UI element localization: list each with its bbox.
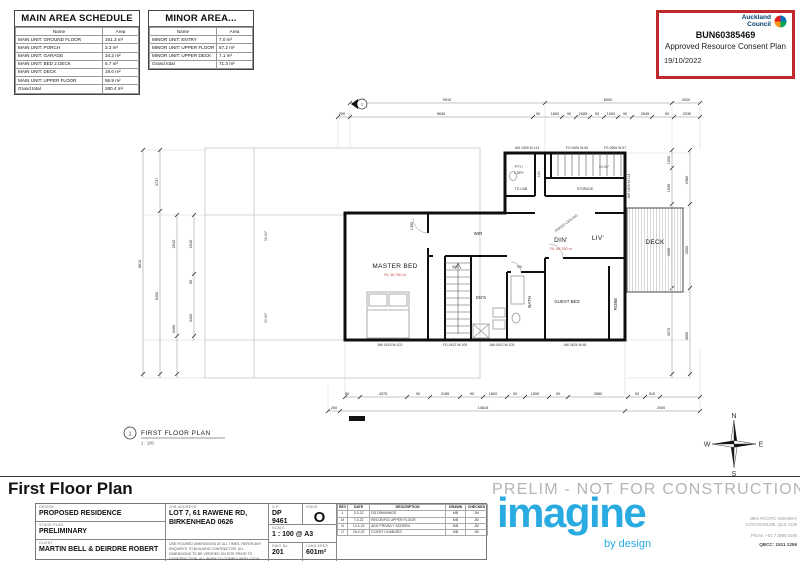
floor-plan-drawing: 1 MASTER BED RL 46.780 m WIR EN'S BATH — [115, 86, 745, 446]
svg-text:3580: 3580 — [594, 392, 602, 396]
svg-text:200: 200 — [331, 406, 337, 410]
svg-text:2545: 2545 — [641, 112, 649, 116]
master-rl-label: RL 46.780 m — [384, 273, 406, 277]
sheet-divider — [0, 476, 800, 477]
auckland-council-logo-icon — [774, 15, 787, 28]
table-row: MAIN UNIT: GROUND FLOOR161.3 m² — [16, 36, 139, 44]
svg-text:2020: 2020 — [682, 98, 690, 102]
disclaimer-text: USE FIGURED DIMENSIONS AT ALL TIMES. REF… — [169, 541, 265, 561]
company-qbcc: QBCC: 1511 1256 — [700, 542, 797, 549]
room-label-ldry: L'DRY — [514, 171, 524, 175]
svg-text:AW 1806 W-113: AW 1806 W-113 — [515, 146, 540, 150]
svg-text:4375: 4375 — [379, 392, 387, 396]
svg-text:90: 90 — [513, 392, 517, 396]
svg-text:2085: 2085 — [579, 112, 587, 116]
table-row: MINOR UNIT: ENTRY7.0 m² — [150, 36, 253, 44]
svg-text:90: 90 — [556, 392, 560, 396]
consent-reference: BUN60385469 — [664, 30, 787, 40]
caption-title: FIRST FLOOR PLAN — [141, 430, 211, 437]
col-header-name: Name — [16, 28, 103, 36]
room-label-guest-bed: GUEST BED — [554, 299, 579, 304]
svg-text:90: 90 — [345, 392, 349, 396]
sp-label: S.P — [272, 505, 299, 509]
deck-area — [627, 208, 683, 292]
land-area-value: 601m² — [306, 549, 333, 557]
svg-text:1000: 1000 — [607, 112, 615, 116]
approval-stamp: Auckland Council BUN60385469 Approved Re… — [656, 10, 795, 79]
svg-text:9910: 9910 — [443, 98, 451, 102]
table-row: MAIN UNIT: UPPER FLOOR56.9 m² — [16, 77, 139, 85]
table-row: MAIN UNIT: GARAGE34.2 m² — [16, 52, 139, 60]
svg-text:2980: 2980 — [685, 176, 689, 184]
raked-ceiling-note: RAKED CEILING — [554, 213, 579, 233]
caption-number: 1 — [129, 432, 132, 438]
svg-text:510: 510 — [649, 392, 655, 396]
walls — [345, 153, 625, 340]
svg-text:6400: 6400 — [155, 292, 159, 300]
room-label-pty: PTY / — [515, 165, 523, 169]
imagine-logo: imagine — [497, 492, 645, 534]
svg-text:9630: 9630 — [437, 112, 445, 116]
lower-floor-outline — [205, 148, 480, 378]
table-row: MAIN UNIT: DECK19.0 m² — [16, 68, 139, 76]
svg-text:AW 0624 W-65: AW 0624 W-65 — [564, 343, 587, 347]
svg-text:2500: 2500 — [685, 246, 689, 254]
scale-label: SCALE — [272, 526, 333, 530]
revision-table: REV DATE DESCRIPTION DRAWN CHECKED L3.3.… — [337, 504, 488, 536]
table-total-row: Grand total71.3 m² — [150, 60, 253, 68]
svg-text:2030: 2030 — [683, 112, 691, 116]
svg-text:AW 0418 W-102: AW 0418 W-102 — [378, 343, 403, 347]
client-label: CLIENT — [39, 541, 162, 545]
approval-text: Approved Resource Consent Plan — [664, 42, 787, 51]
svg-text:1300: 1300 — [410, 222, 414, 230]
svg-text:14615: 14615 — [478, 406, 489, 410]
plan-caption: 1 FIRST FLOOR PLAN 1 : 100 — [124, 427, 225, 446]
svg-text:90: 90 — [623, 112, 627, 116]
minor-area-schedule-title: MINOR AREA... — [149, 11, 253, 27]
table-row: MINOR UNIT: UPPER DECK7.1 m² — [150, 52, 253, 60]
bearing-note: 30.00° — [264, 230, 268, 241]
room-label-bath: BATH — [527, 296, 532, 307]
land-area-label: LAND AREA — [306, 544, 333, 548]
svg-text:600: 600 — [452, 265, 458, 269]
dwg-value: 201 — [272, 549, 299, 557]
minor-area-schedule: MINOR AREA... NameArea MINOR UNIT: ENTRY… — [148, 10, 254, 70]
col-header-name: Name — [150, 28, 217, 36]
svg-text:3400: 3400 — [172, 325, 176, 333]
company-phone: Phone: +61 7 3806 0195 — [700, 533, 797, 539]
svg-text:90: 90 — [567, 112, 571, 116]
sp-value: DP 9461 — [272, 510, 299, 525]
approval-date: 19/10/2022 — [664, 56, 787, 65]
main-area-schedule: MAIN AREA SCHEDULE NameArea MAIN UNIT: G… — [14, 10, 140, 95]
svg-text:90: 90 — [665, 112, 669, 116]
room-label-deck: DECK — [645, 239, 665, 246]
din-rl-label: RL 46.780 m — [550, 247, 572, 251]
client-value: MARTIN BELL & DEIRDRE ROBERT — [39, 546, 162, 554]
table-row: MAIN UNIT: PORCH3.3 m² — [16, 44, 139, 52]
svg-text:1000: 1000 — [667, 156, 671, 164]
job-address-label: JOB ADDRESS — [169, 505, 265, 509]
svg-text:90: 90 — [595, 112, 599, 116]
svg-text:AW-0412 W-103: AW-0412 W-103 — [490, 343, 515, 347]
table-row: MINOR UNIT: UPPER FLOOR57.2 m² — [150, 44, 253, 52]
company-contact-block: 2964 PACIFIC HIGHWAY LOGANHOLME, QLD 412… — [700, 516, 797, 549]
room-label-robe: ROBE — [613, 298, 618, 311]
col-header-area: Area — [103, 28, 139, 36]
room-label-storage: STORAGE — [577, 187, 594, 191]
scale-value: 1 : 100 @ A3 — [272, 531, 333, 539]
dimension-labels: 9910 6000 2020 200 9630 90 1800 90 2085 … — [138, 98, 691, 410]
room-label-tdcab: TD CAB — [515, 187, 528, 191]
bearing-note: 30.00° — [264, 312, 268, 323]
svg-text:2185: 2185 — [441, 392, 449, 396]
council-name: Auckland Council — [742, 15, 771, 29]
svg-text:700: 700 — [516, 265, 522, 269]
svg-text:90: 90 — [189, 280, 193, 284]
dwg-label: DWG No. — [272, 544, 299, 548]
room-label-master-bed: MASTER BED — [372, 263, 417, 270]
room-label-lin: LIN — [537, 171, 541, 177]
svg-text:1800: 1800 — [489, 392, 497, 396]
section-marker: 1 — [351, 99, 367, 109]
stage-label: STAGE PLAN — [39, 523, 162, 527]
svg-text:2940: 2940 — [172, 240, 176, 248]
svg-text:90: 90 — [416, 392, 420, 396]
room-label-din: DIN' — [554, 237, 568, 244]
svg-text:FG 0606 W-56: FG 0606 W-56 — [566, 146, 588, 150]
room-label-ens: EN'S — [476, 295, 486, 300]
title-block: DESIGN PROPOSED RESIDENCE STAGE PLAN PRE… — [35, 503, 487, 560]
svg-text:90: 90 — [635, 392, 639, 396]
svg-text:FG-0412 W-109: FG-0412 W-109 — [443, 343, 467, 347]
main-area-schedule-title: MAIN AREA SCHEDULE — [15, 11, 139, 27]
compass-north-label: N — [731, 413, 736, 420]
compass-rose: N S E W — [700, 412, 768, 478]
svg-text:90: 90 — [470, 392, 474, 396]
stage-value: PRELIMINARY — [39, 528, 162, 536]
compass-west-label: W — [704, 442, 711, 449]
col-header-area: Area — [217, 28, 253, 36]
job-address-line1: LOT 7, 61 RAWENE RD, — [169, 510, 265, 518]
scale-origin-mark — [349, 416, 365, 421]
page-title: First Floor Plan — [8, 479, 133, 499]
svg-text:3650: 3650 — [685, 332, 689, 340]
svg-text:4490: 4490 — [667, 248, 671, 256]
table-row: MAIN UNIT: BED 2 DECK5.7 m² — [16, 60, 139, 68]
room-label-liv: LIV' — [592, 235, 604, 242]
svg-text:90: 90 — [536, 112, 540, 116]
compass-east-label: E — [759, 442, 764, 449]
room-label-wir: WIR — [474, 231, 483, 236]
caption-scale: 1 : 100 — [141, 441, 154, 446]
svg-text:2940: 2940 — [189, 240, 193, 248]
svg-text:AW 1806 W-114: AW 1806 W-114 — [627, 174, 631, 199]
design-label: DESIGN — [39, 505, 162, 509]
logo-tagline: by design — [604, 538, 651, 550]
svg-text:1550: 1550 — [531, 392, 539, 396]
svg-text:3370: 3370 — [667, 328, 671, 336]
company-address-line2: LOGANHOLME, QLD 4129 — [700, 522, 797, 528]
revision-row: O26.4.22CLIENT CHANGESMBJM — [338, 530, 488, 536]
svg-text:2000: 2000 — [657, 406, 665, 410]
svg-text:3737: 3737 — [155, 178, 159, 186]
svg-text:6000: 6000 — [604, 98, 612, 102]
svg-text:3400: 3400 — [189, 314, 193, 322]
svg-text:1935: 1935 — [667, 184, 671, 192]
svg-text:6610: 6610 — [138, 260, 142, 268]
svg-text:1800: 1800 — [551, 112, 559, 116]
roof-angle-note: 30.00° — [599, 165, 610, 169]
design-value: PROPOSED RESIDENCE — [39, 510, 162, 518]
issue-value: O — [306, 509, 333, 525]
svg-text:FG-0606 W-57: FG-0606 W-57 — [604, 146, 626, 150]
svg-text:200: 200 — [339, 112, 345, 116]
room-labels: MASTER BED RL 46.780 m WIR EN'S BATH GUE… — [264, 165, 665, 323]
job-address-line2: BIRKENHEAD 0626 — [169, 519, 265, 527]
